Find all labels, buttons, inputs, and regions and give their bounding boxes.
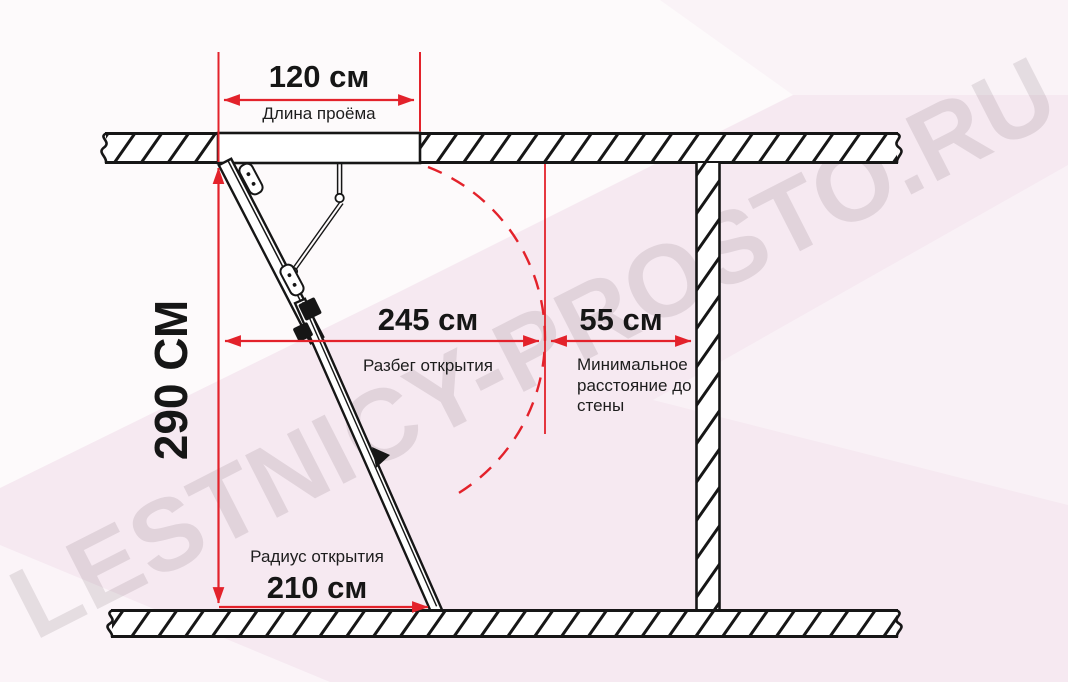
dim-run-value: 245 см: [378, 302, 479, 338]
ladder-dimensions-diagram: LESTNICY-PROSTO.RU: [0, 0, 1068, 682]
ceiling-opening: [218, 133, 420, 163]
ceiling-break-left: [101, 134, 106, 163]
dim-radius-label: Радиус открытия: [250, 547, 384, 567]
ceiling-slab: [101, 133, 901, 163]
dim-run-label: Разбег открытия: [363, 356, 493, 376]
attic-ladder: [219, 159, 442, 614]
dim-height-value: 290 СМ: [144, 300, 198, 460]
right-wall: [696, 163, 720, 610]
floor-slab: [107, 611, 901, 637]
dim-wall-value: 55 см: [579, 302, 662, 338]
dim-wall-label: Минимальное расстояние до стены: [577, 355, 695, 417]
ceiling-break-right: [896, 134, 901, 163]
dim-radius-value: 210 см: [267, 570, 368, 606]
floor-break-right: [896, 611, 901, 637]
support-strut: [290, 164, 344, 276]
dim-opening-length-label: Длина проёма: [262, 104, 375, 124]
dim-opening-length-value: 120 см: [269, 59, 370, 95]
floor-break-left: [107, 611, 112, 637]
